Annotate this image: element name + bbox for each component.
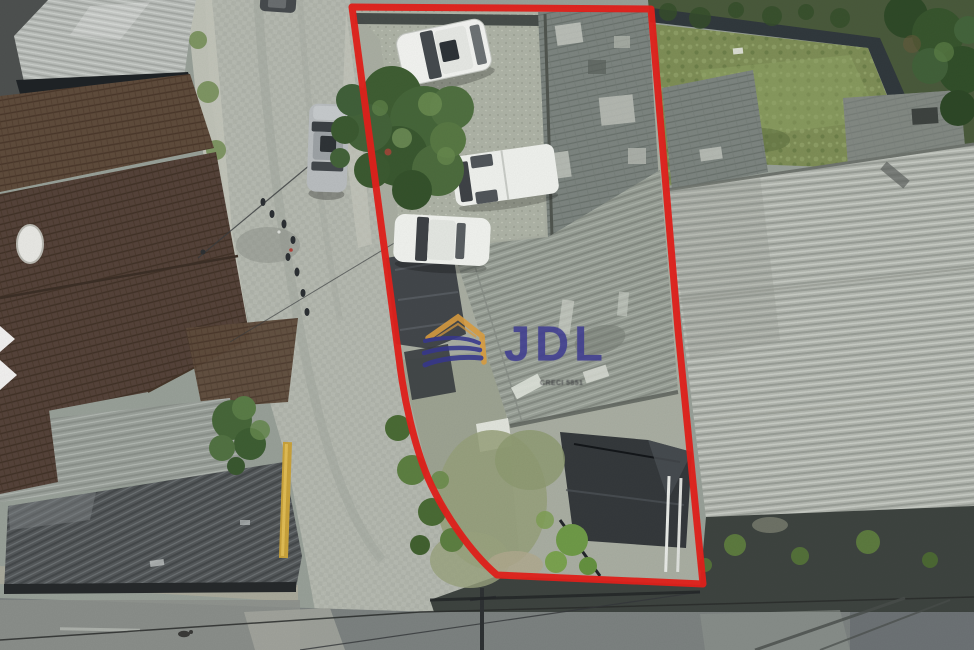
film-grain bbox=[0, 0, 974, 650]
photo-scene bbox=[0, 0, 974, 650]
aerial-photo: JDL CRECI 5851 bbox=[0, 0, 974, 650]
